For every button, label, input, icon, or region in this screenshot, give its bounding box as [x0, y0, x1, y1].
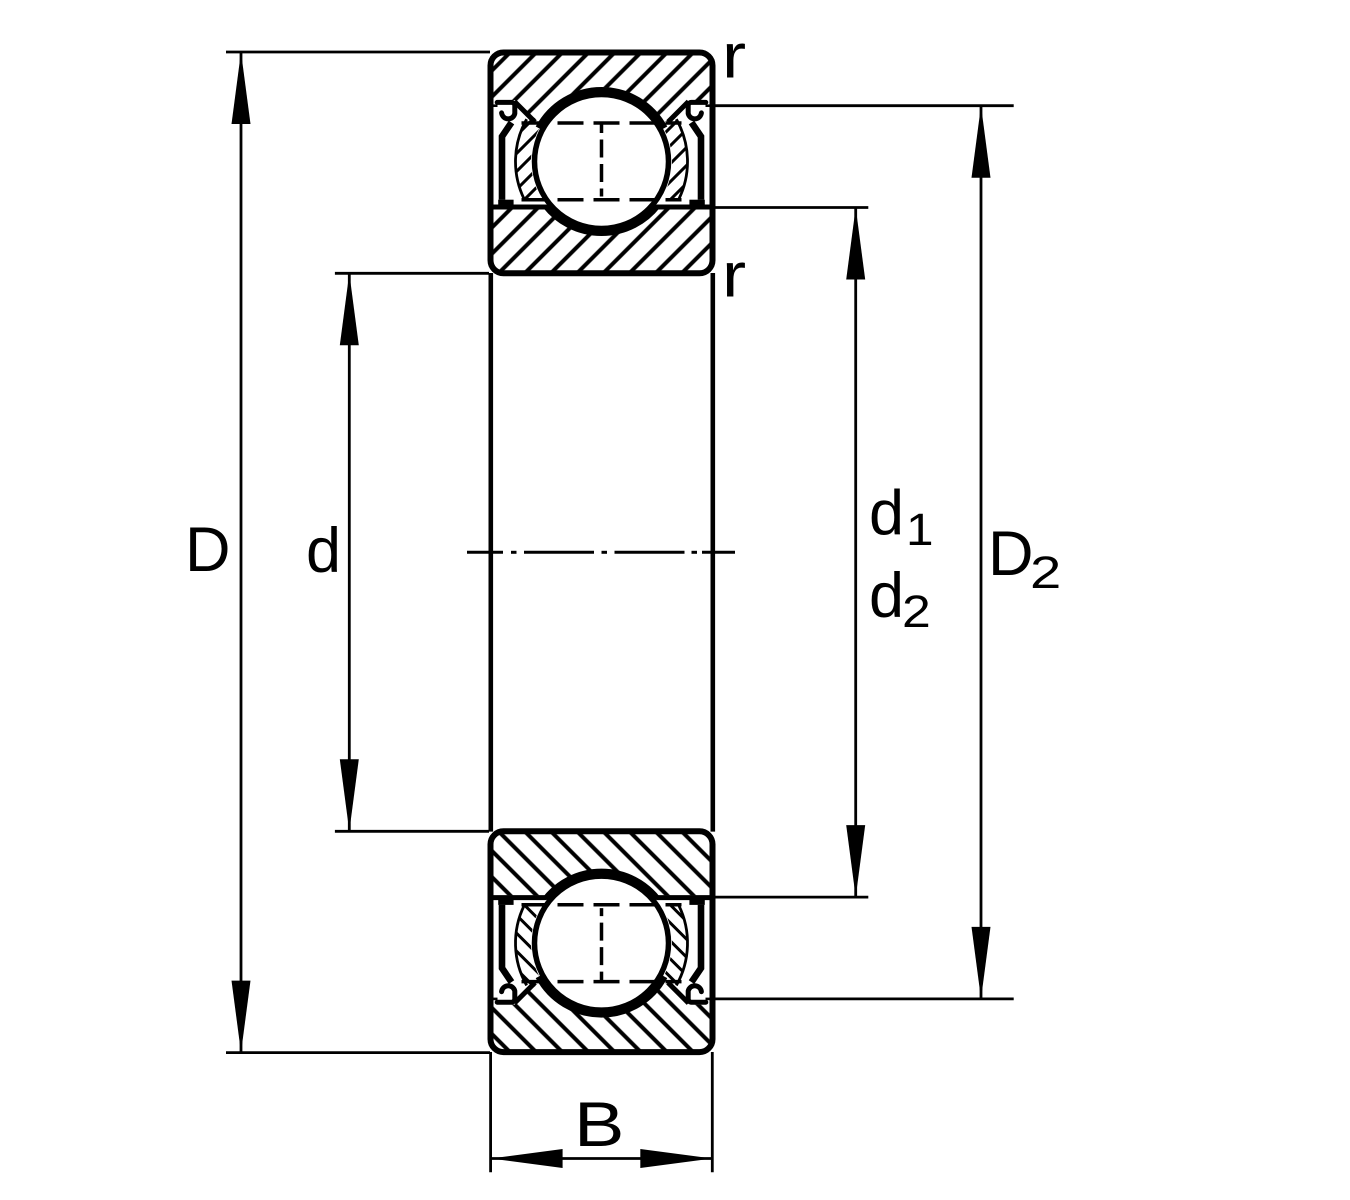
svg-text:1: 1	[906, 505, 934, 555]
svg-text:d: d	[306, 516, 341, 586]
svg-text:B: B	[574, 1089, 624, 1160]
svg-text:D: D	[185, 515, 231, 585]
svg-text:r: r	[722, 241, 746, 311]
svg-text:d: d	[869, 561, 904, 631]
svg-text:d: d	[869, 479, 904, 549]
svg-text:2: 2	[1030, 547, 1061, 597]
svg-text:D: D	[988, 519, 1034, 589]
svg-text:2: 2	[902, 587, 931, 637]
svg-text:r: r	[722, 22, 746, 92]
